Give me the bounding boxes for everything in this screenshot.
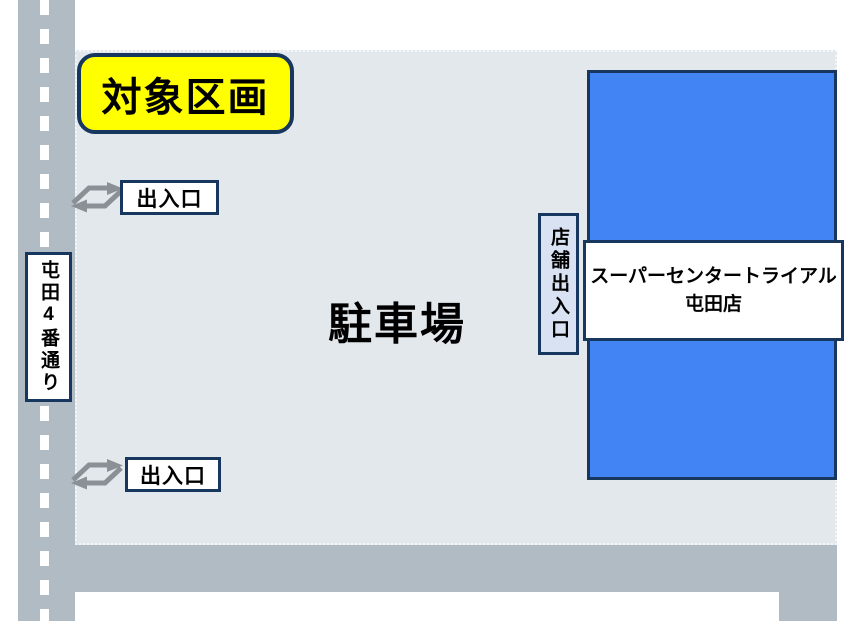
store-name-box: スーパーセンタートライアル 屯田店 <box>583 240 844 341</box>
entrance-top-text: 出入口 <box>137 183 203 213</box>
entrance-top-label: 出入口 <box>120 180 219 215</box>
two-way-arrow-icon <box>70 179 124 215</box>
target-section-badge: 対象区画 <box>77 53 294 134</box>
street-name-sign: 屯田4番通り <box>25 252 72 402</box>
entrance-bottom-label: 出入口 <box>125 457 221 492</box>
store-parking-map: スーパーセンタートライアル 屯田店 店舗出入口 対象区画 出入口 出入口 屯田4… <box>0 0 849 621</box>
two-way-arrow-icon <box>70 456 124 492</box>
entrance-bottom-text: 出入口 <box>140 460 206 490</box>
target-section-label: 対象区画 <box>102 65 270 123</box>
road-bottom <box>75 545 837 592</box>
parking-lot-label: 駐車場 <box>197 288 597 352</box>
store-name-line1: スーパーセンタートライアル <box>590 263 837 291</box>
road-bottom-stub <box>779 592 837 621</box>
store-entrance-label: 店舗出入口 <box>538 213 579 355</box>
store-name-line2: 屯田店 <box>685 291 742 319</box>
